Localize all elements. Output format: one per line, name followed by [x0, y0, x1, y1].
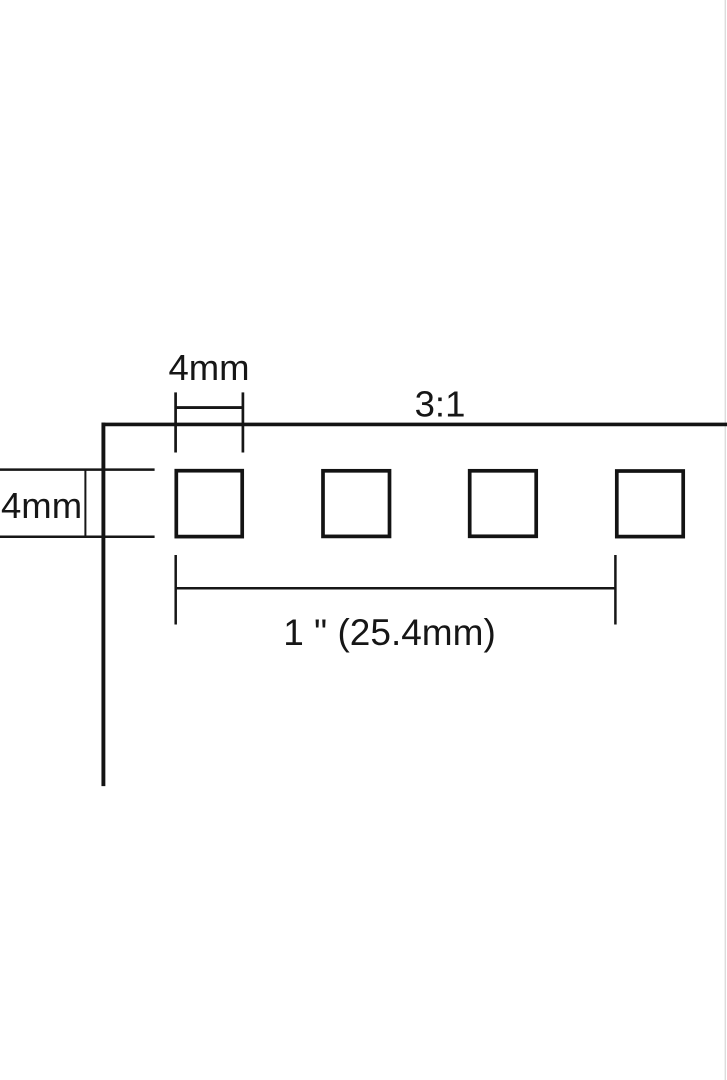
svg-text:4mm: 4mm	[168, 347, 249, 388]
svg-text:1 " (25.4mm): 1 " (25.4mm)	[283, 612, 496, 653]
svg-text:4mm: 4mm	[1, 485, 82, 526]
svg-text:3:1: 3:1	[415, 384, 466, 425]
